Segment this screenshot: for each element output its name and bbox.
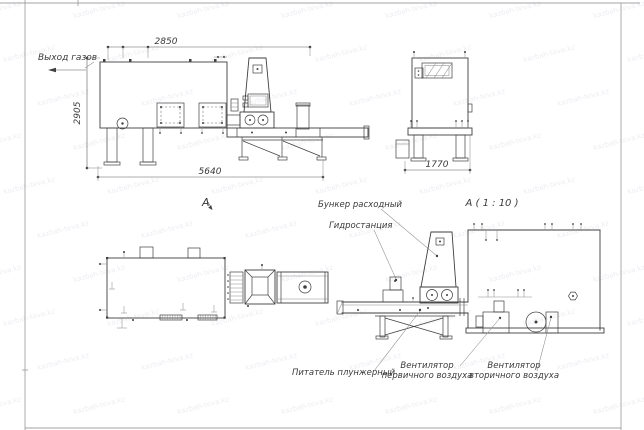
view-a-label: А [201,196,213,210]
watermark-text: kazbah-teva.kz [37,219,91,240]
watermark-text: kazbah-teva.kz [315,307,369,328]
dim-2905: 2905 [73,57,102,170]
bunker-label: Бункер расходный [318,200,403,210]
fan-secondary-label-1: Вентилятор [487,361,540,371]
watermark-text: kazbah-teva.kz [141,351,195,372]
section-view [337,223,604,339]
watermark-text: kazbah-teva.kz [3,175,57,196]
dim-1770-text: 1770 [426,160,449,170]
watermark-text: kazbah-teva.kz [281,263,335,284]
watermark-text: kazbah-teva.kz [627,43,644,64]
watermark-text: kazbah-teva.kz [107,43,161,64]
dim-2850-text: 2850 [155,37,178,47]
fan-secondary-callout: Вентилятор вторичного воздуха [469,318,559,381]
watermark-text: kazbah-teva.kz [211,43,265,64]
feeder-trestle [375,316,455,339]
watermark-text: kazbah-teva.kz [385,263,439,284]
watermark-text: kazbah-teva.kz [141,219,195,240]
section-a-label: А ( 1 : 10 ) [465,198,519,209]
watermark-text: kazbah-teva.kz [281,395,335,416]
watermark-text: kazbah-teva.kz [627,175,644,196]
hydro-label: Гидростанция [329,221,393,231]
watermark-text: kazbah-teva.kz [73,131,127,152]
watermark-text: kazbah-teva.kz [0,395,22,416]
watermark-text: kazbah-teva.kz [315,43,369,64]
gas-outlet-callout: Выход газов [38,53,97,72]
fan-primary-label-2: первичного воздуха [382,371,473,381]
watermark-text: kazbah-teva.kz [557,351,611,372]
watermark-text: kazbah-teva.kz [523,43,577,64]
hydro-callout: Гидростанция [329,221,397,281]
watermark-text: kazbah-teva.kz [177,263,231,284]
dim-5640: 5640 [97,160,325,181]
sheet-frame [0,0,640,430]
front-view [100,58,369,165]
watermark-text: kazbah-teva.kz [523,175,577,196]
watermark-text: kazbah-teva.kz [245,351,299,372]
watermark-text: kazbah-teva.kz [3,307,57,328]
watermark-text: kazbah-teva.kz [593,395,644,416]
drawing-sheet: kazbah-teva.kzkazbah-teva.kzkazbah-teva.… [0,0,644,430]
watermark-text: kazbah-teva.kz [141,87,195,108]
feeder-label: Питатель плунжерный [292,368,396,378]
watermark-text: kazbah-teva.kz [489,263,543,284]
watermark-text: kazbah-teva.kz [107,175,161,196]
fan-primary-label-1: Вентилятор [400,361,453,371]
watermark-text: kazbah-teva.kz [489,395,543,416]
watermark-text: kazbah-teva.kz [73,263,127,284]
watermark-text: kazbah-teva.kz [385,131,439,152]
watermark-text: kazbah-teva.kz [177,395,231,416]
section-a-text: А ( 1 : 10 ) [465,198,519,209]
watermark-text: kazbah-teva.kz [627,307,644,328]
watermark-text: kazbah-teva.kz [37,351,91,372]
watermark-text: kazbah-teva.kz [419,175,473,196]
watermark-text: kazbah-teva.kz [453,87,507,108]
watermark-text: kazbah-teva.kz [0,263,22,284]
watermark-text: kazbah-teva.kz [349,87,403,108]
technical-drawing: kazbah-teva.kzkazbah-teva.kzkazbah-teva.… [0,0,644,430]
watermark-text: kazbah-teva.kz [245,219,299,240]
watermark-text: kazbah-teva.kz [385,395,439,416]
fan-secondary-label-2: вторичного воздуха [469,371,559,381]
watermark-text: kazbah-teva.kz [73,395,127,416]
dim-2905-text: 2905 [73,101,83,124]
watermark-text: kazbah-teva.kz [211,175,265,196]
watermark-text: kazbah-teva.kz [419,43,473,64]
dim-5640-text: 5640 [199,167,222,177]
watermark-text: kazbah-teva.kz [0,131,22,152]
watermark-text: kazbah-teva.kz [489,131,543,152]
watermark-text: kazbah-teva.kz [281,131,335,152]
watermark-text: kazbah-teva.kz [557,87,611,108]
watermark-text: kazbah-teva.kz [593,131,644,152]
watermark-text: kazbah-teva.kz [315,175,369,196]
watermark-text: kazbah-teva.kz [177,131,231,152]
